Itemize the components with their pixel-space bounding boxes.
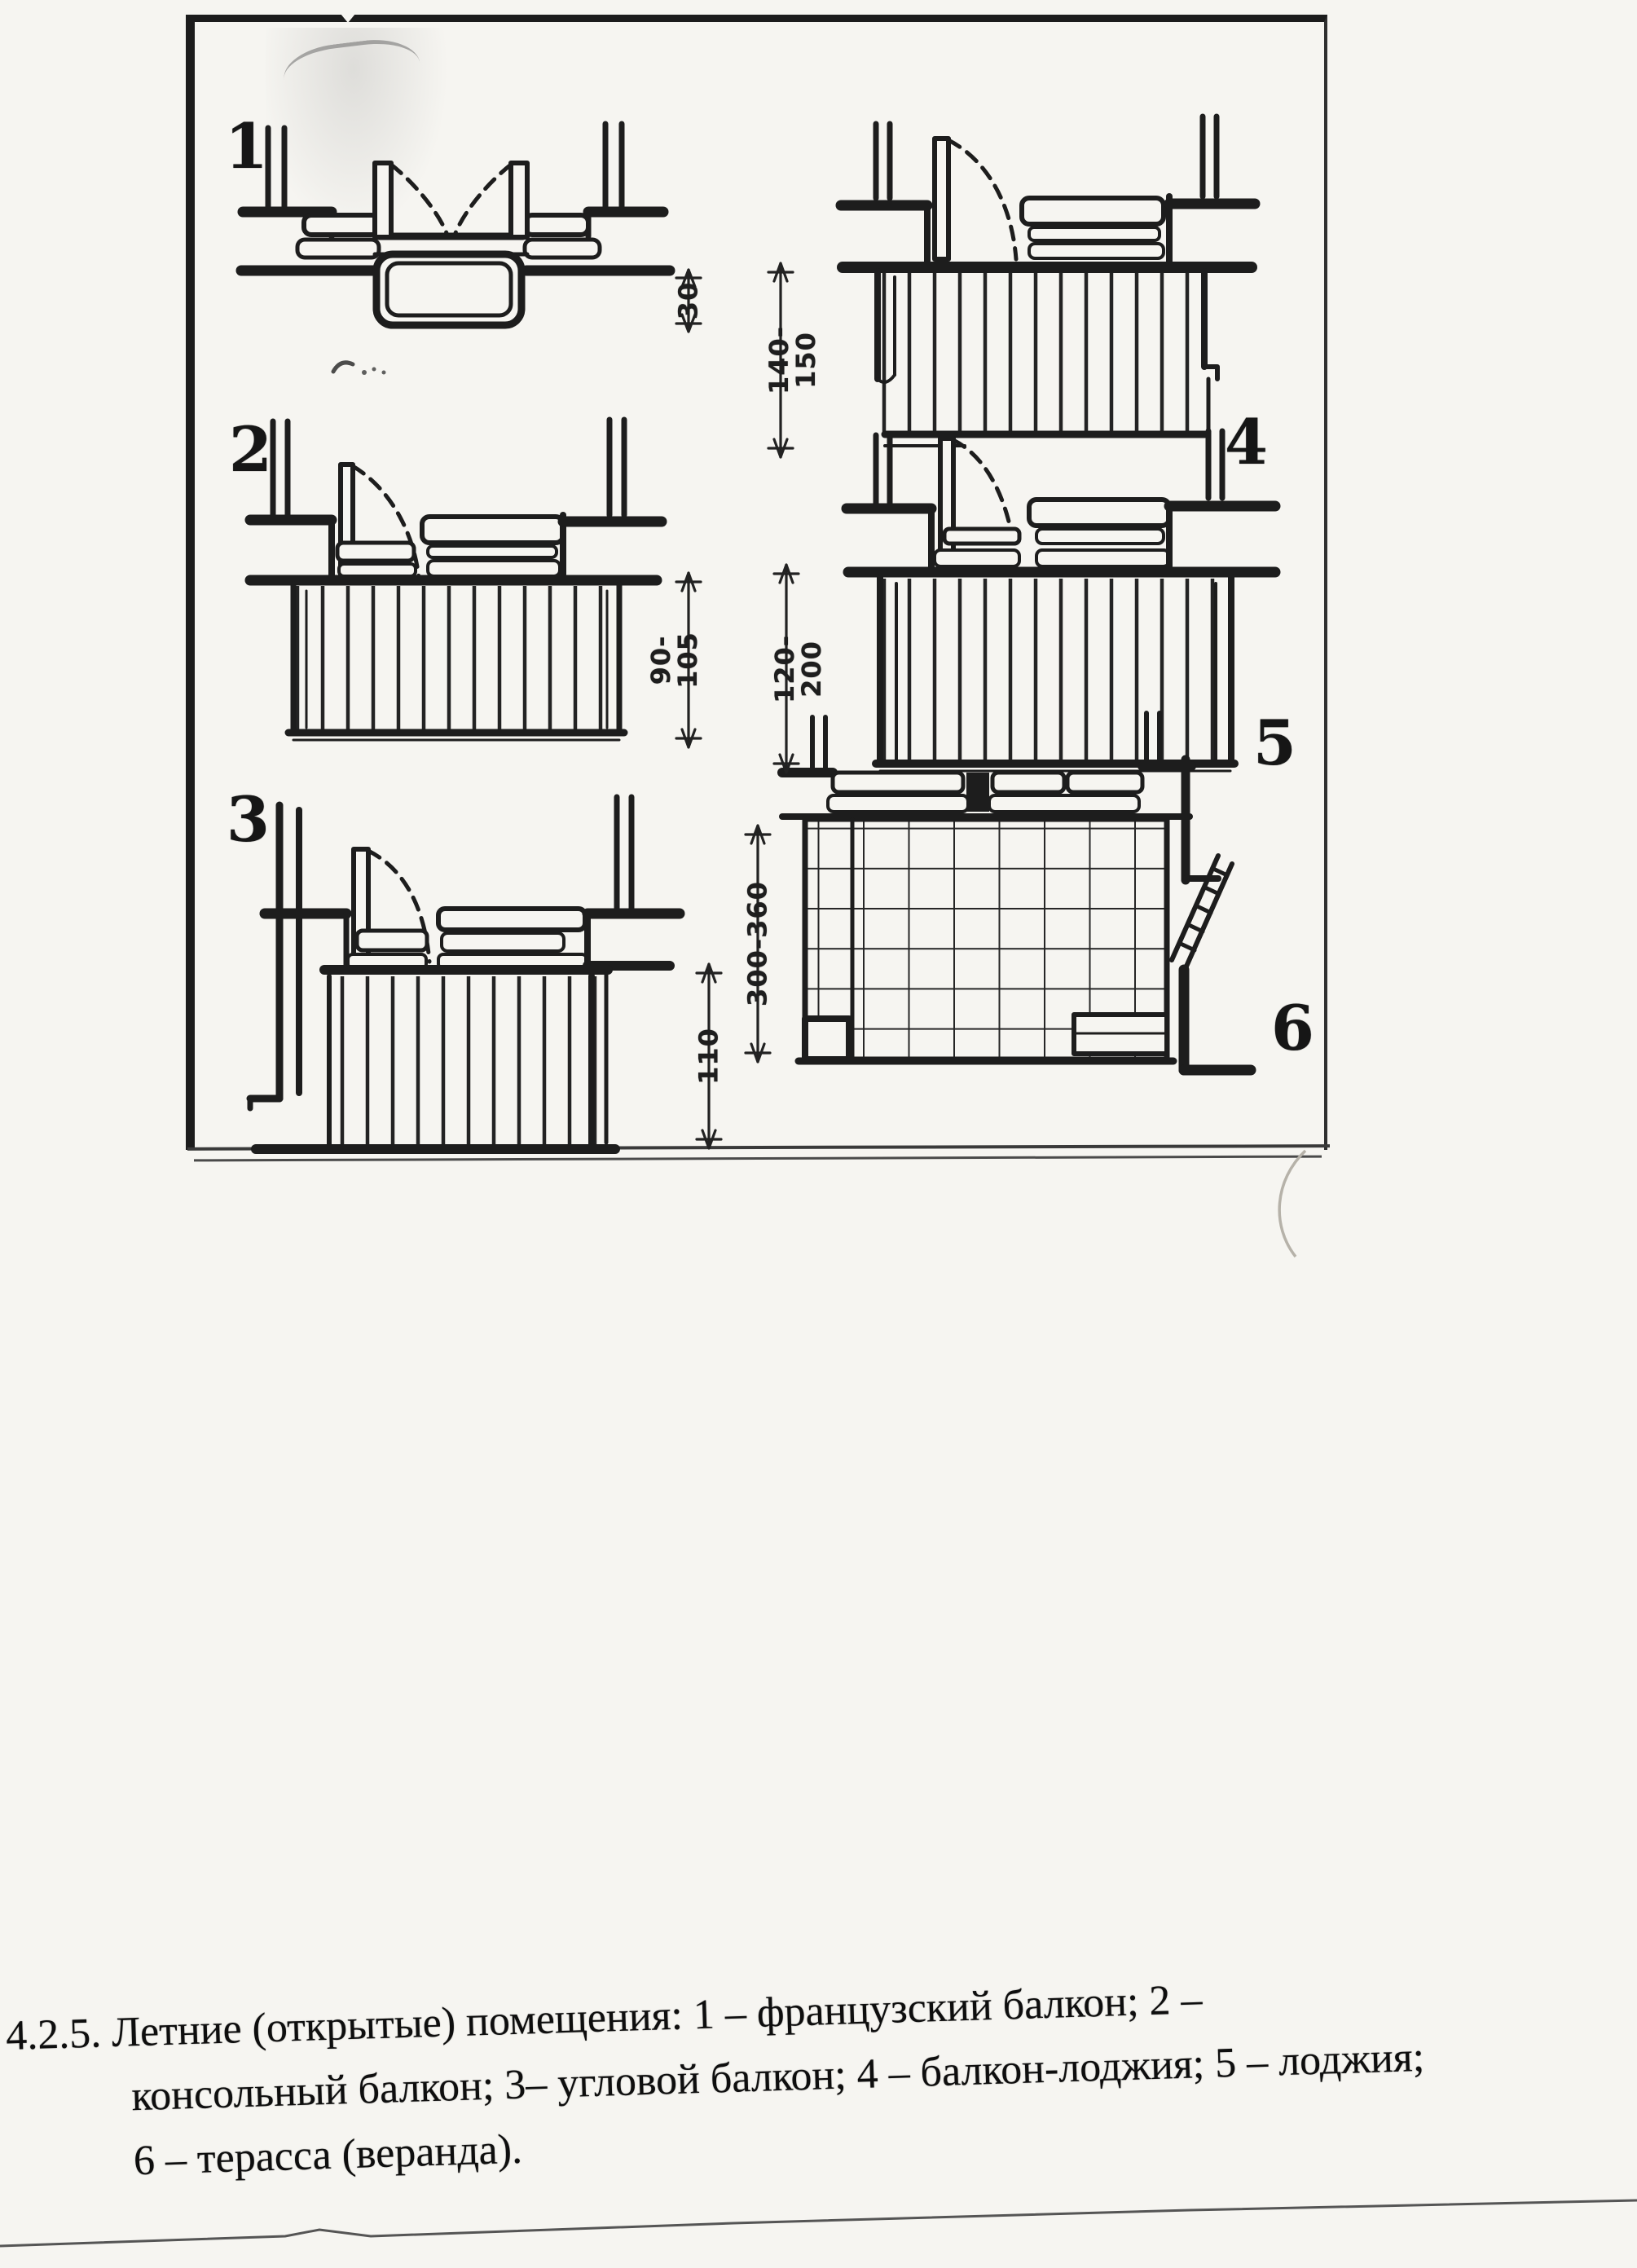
dimension-label: 90- 105 [648, 632, 702, 689]
plan-console-balcony [244, 412, 668, 746]
window-mullion [966, 773, 989, 812]
figure-caption: 4.2.5. Летние (открытые) помещения: 1 – … [5, 1954, 1635, 2197]
wall-pilasters [617, 797, 631, 914]
wall-pilasters [812, 713, 1160, 770]
dimension-300-360: 300-360 [738, 821, 777, 1066]
door-leaves [375, 163, 527, 237]
stair-ramp [1172, 856, 1232, 968]
wall-pilasters [268, 124, 622, 207]
wall-pilasters [273, 420, 624, 520]
corner-block [805, 1019, 849, 1059]
balcony-deck [292, 586, 621, 733]
dimension-90-105: 90- 105 [669, 569, 708, 751]
dimension-label: 120- 200 [772, 634, 825, 702]
dimension-label: 110 [696, 1028, 723, 1085]
door-swing-arcs [391, 165, 511, 236]
window-sills [422, 517, 563, 576]
plan-terrace-veranda [774, 709, 1279, 1084]
dimension-110: 110 [689, 960, 728, 1152]
page-edge-line [0, 2182, 1637, 2268]
scan-mark [330, 352, 395, 385]
scan-pencil-curve [1261, 1147, 1318, 1262]
figure-number-3: 3 [227, 789, 270, 851]
figure-number-2: 2 [229, 419, 272, 481]
figure-number-1: 1 [225, 116, 268, 178]
dimension-120-200: 120- 200 [767, 561, 806, 777]
window-sills [438, 909, 587, 969]
plan-corner-balcony [213, 781, 702, 1164]
balcony-slab [376, 254, 521, 325]
door-swing-arc [948, 140, 1016, 259]
balcony-deck [879, 273, 1208, 434]
figure-number-6: 6 [1271, 997, 1314, 1059]
wall-pilasters [876, 431, 1222, 507]
window-sills [1029, 500, 1169, 566]
dimension-label: 140- 150 [766, 326, 820, 394]
door-swing-arc [953, 440, 1016, 566]
dimension-140-150: 140- 150 [761, 259, 800, 461]
door-leaf [935, 139, 948, 259]
door-sill [348, 931, 427, 969]
door-sill [337, 543, 416, 576]
scanned-page: { "page": { "paper_color": "#f6f5f1", "i… [0, 0, 1637, 2268]
wall-pilasters [876, 117, 1217, 198]
figure-number-5: 5 [1253, 712, 1296, 774]
balcony-deck [328, 976, 608, 1146]
dimension-30: 30 [669, 266, 708, 336]
bench [1074, 1015, 1167, 1054]
dimension-label: 30 [675, 282, 702, 320]
corner-wall [1184, 970, 1251, 1070]
plan-french-balcony [213, 114, 686, 350]
dimension-label: 300-360 [745, 881, 772, 1006]
window-sills [1022, 198, 1164, 258]
figure-number-4: 4 [1225, 412, 1268, 473]
plan-balcony-loggia [831, 110, 1275, 460]
